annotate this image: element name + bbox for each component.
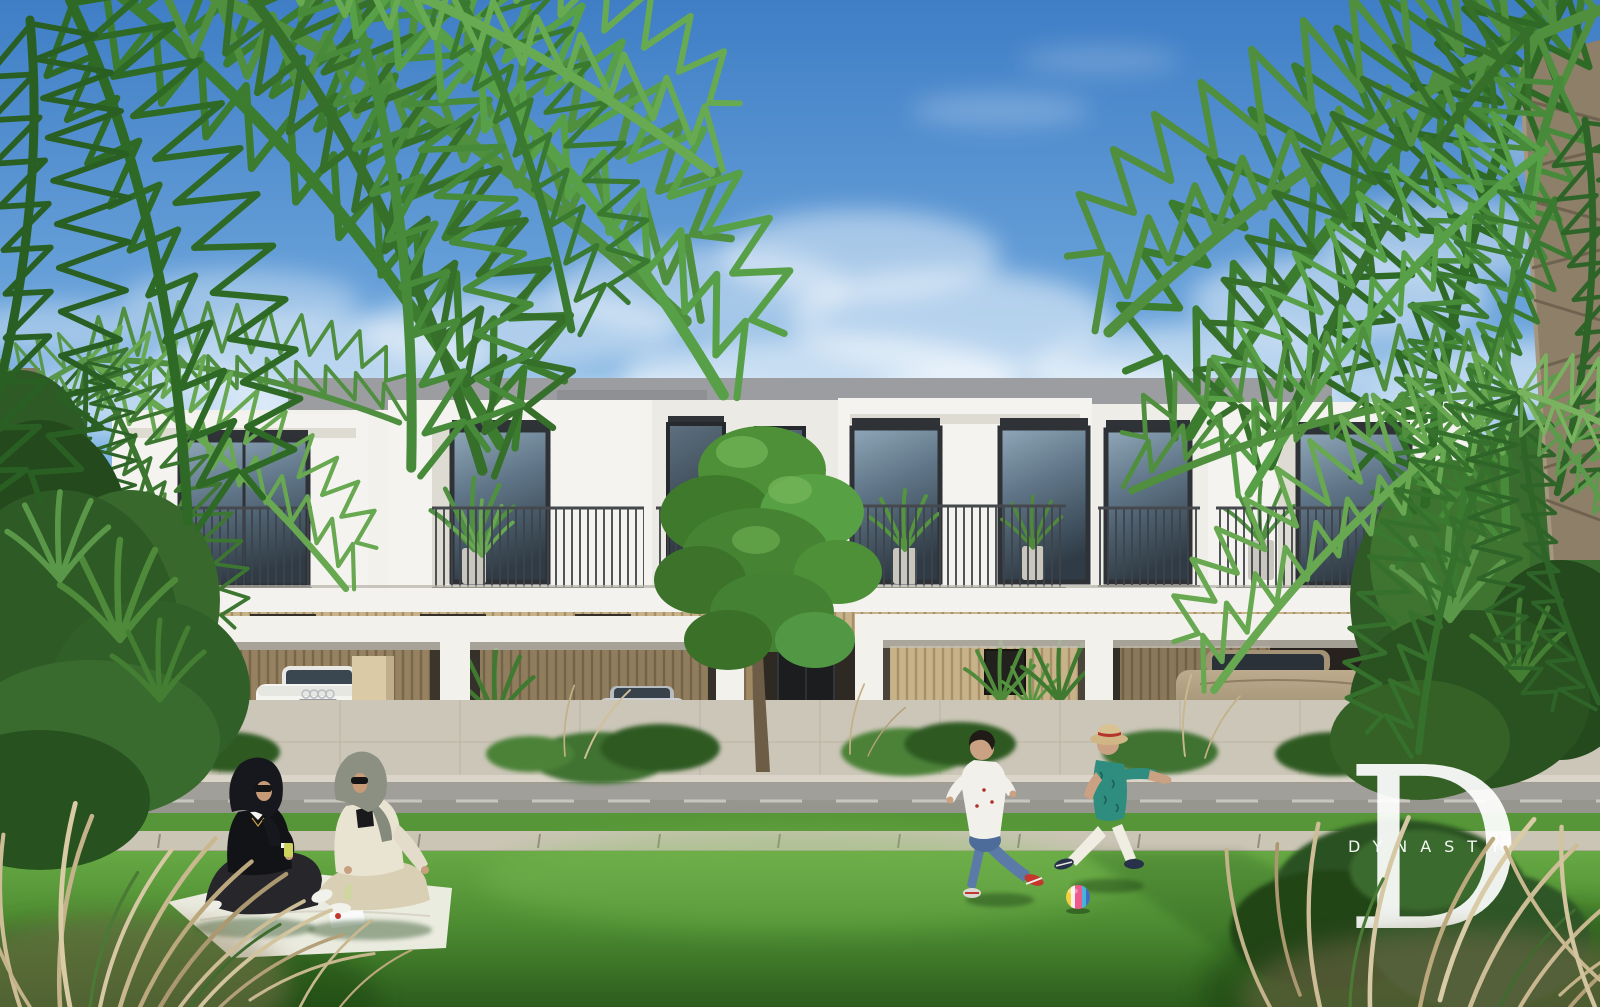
hand <box>421 866 429 874</box>
sneaker <box>329 903 351 913</box>
sneaker-navy <box>1124 859 1144 869</box>
tropical-shirt <box>1093 760 1127 821</box>
hand <box>344 866 352 874</box>
hand <box>1165 777 1172 784</box>
balcony-railing <box>432 508 644 588</box>
drink-can <box>284 843 293 857</box>
sunglasses <box>254 785 272 792</box>
sunglasses <box>351 777 368 784</box>
hand <box>1010 791 1017 798</box>
architectural-render: A 0123 <box>0 0 1600 1007</box>
hand <box>947 797 954 804</box>
balcony-railing <box>1098 508 1200 586</box>
carport-beam <box>855 614 1427 640</box>
striped-ball <box>1066 885 1090 914</box>
